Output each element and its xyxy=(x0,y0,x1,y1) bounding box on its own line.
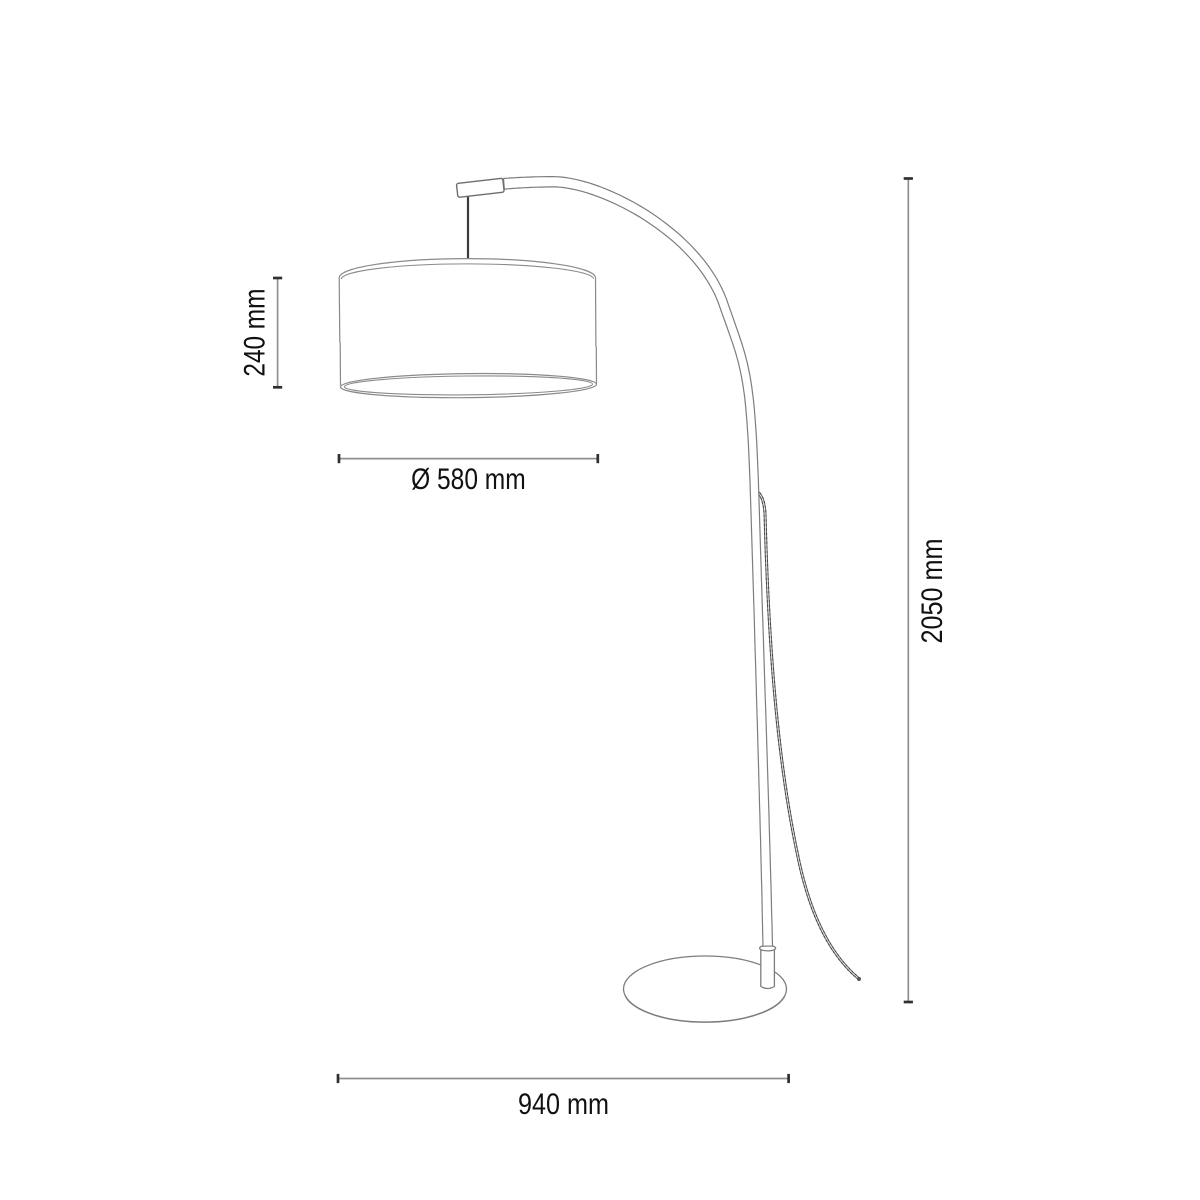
svg-text:2050 mm: 2050 mm xyxy=(916,539,949,644)
svg-text:240 mm: 240 mm xyxy=(239,289,272,377)
svg-text:940 mm: 940 mm xyxy=(518,1088,609,1121)
svg-text:Ø 580 mm: Ø 580 mm xyxy=(411,463,526,496)
